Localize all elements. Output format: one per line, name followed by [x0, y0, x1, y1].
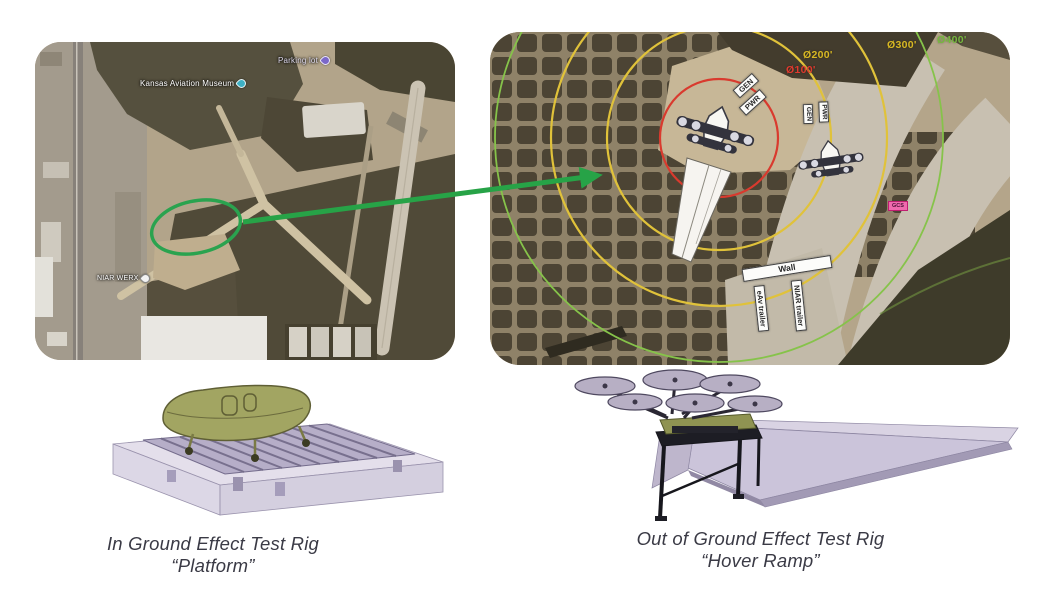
hover-ramp-caption: Out of Ground Effect Test Rig “Hover Ram…	[598, 528, 923, 572]
platform-rig-render	[105, 382, 450, 527]
map-label-museum: Kansas Aviation Museum	[140, 79, 246, 88]
rotors	[575, 370, 782, 412]
slide-canvas: Kansas Aviation Museum Parking lot NIAR …	[0, 0, 1040, 602]
gen-label-box-2: GEN	[803, 104, 814, 124]
hover-caption-line1: Out of Ground Effect Test Rig	[598, 528, 923, 550]
ring-label-300ft: Ø300'	[887, 39, 917, 51]
werx-label-text: NIAR WERX	[97, 275, 138, 282]
overview-satellite-map: Kansas Aviation Museum Parking lot NIAR …	[35, 42, 455, 360]
platform-caption: In Ground Effect Test Rig “Platform”	[58, 533, 368, 577]
hover-ramp-rig-render	[560, 368, 1030, 528]
ring-label-400ft: Ø400'	[937, 34, 967, 46]
pwr-label-box-2: PWR	[818, 101, 829, 123]
platform-caption-line1: In Ground Effect Test Rig	[58, 533, 368, 555]
werx-map-pin-icon	[140, 272, 153, 285]
museum-label-text: Kansas Aviation Museum	[140, 79, 234, 88]
parking-map-pin-icon	[319, 54, 332, 67]
ring-label-100ft: Ø100'	[786, 64, 816, 76]
museum-map-pin-icon	[235, 77, 248, 90]
map-label-werx: NIAR WERX	[97, 274, 150, 283]
map-label-parking: Parking lot	[278, 56, 330, 65]
gcs-label-box: GCS	[888, 201, 908, 211]
parking-label-text: Parking lot	[278, 56, 318, 65]
overview-map-imagery	[35, 42, 455, 360]
ring-label-200ft: Ø200'	[803, 49, 833, 61]
hover-caption-line2: “Hover Ramp”	[598, 550, 923, 572]
test-site-satellite-map: Ø100' Ø200' Ø300' Ø400' GEN PWR GEN PWR …	[490, 32, 1010, 365]
platform-caption-line2: “Platform”	[58, 555, 368, 577]
